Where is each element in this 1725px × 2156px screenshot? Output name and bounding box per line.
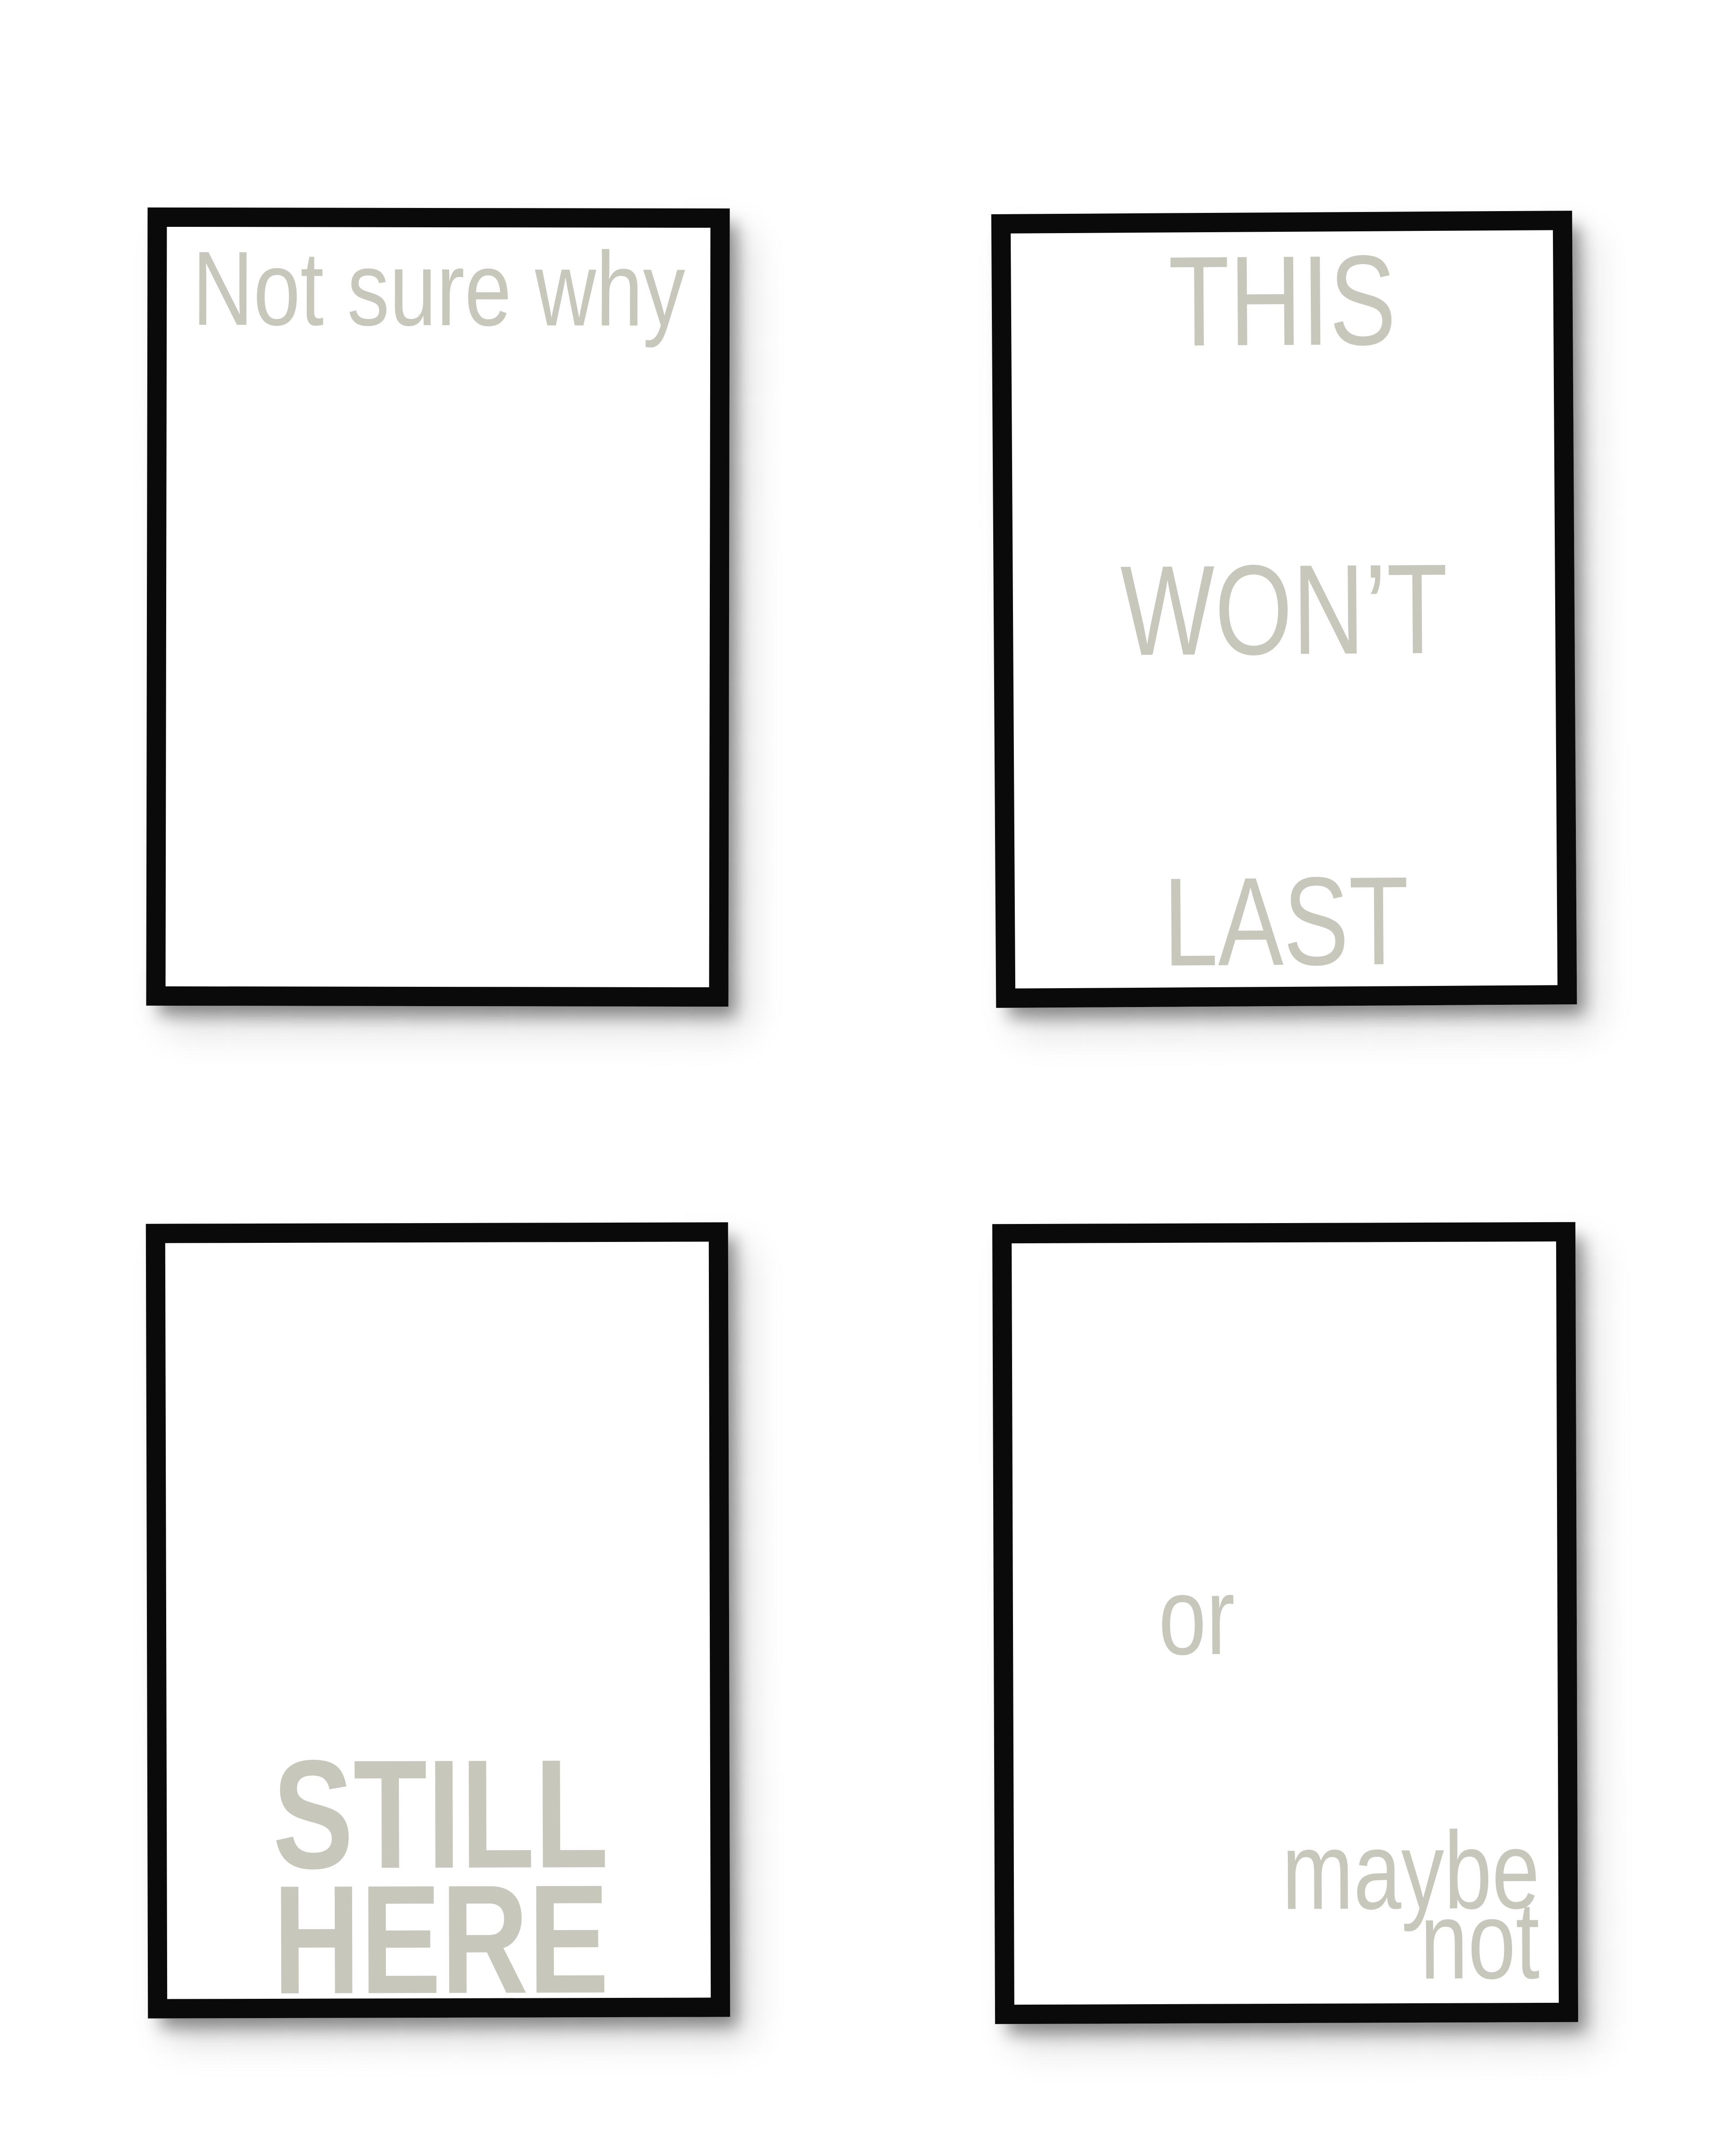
poster-frame-top-left: Not sure why: [146, 208, 730, 1007]
poster-frame-bottom-right: or maybe not: [992, 1222, 1578, 2024]
poster-sheet-top-right: THIS WON’T LAST: [1011, 230, 1557, 988]
poster-line-or: or: [1159, 1561, 1235, 1671]
poster-frame-bottom-left: STILL HERE: [146, 1222, 730, 2018]
wall-background: Not sure why THIS WON’T LAST STILL HERE …: [0, 0, 1725, 2156]
poster-line-not: not: [1420, 1885, 1540, 1996]
poster-line-last: LAST: [1074, 857, 1498, 986]
poster-line-not-sure-why: Not sure why: [192, 235, 685, 342]
poster-sheet-bottom-right: or maybe not: [1012, 1241, 1559, 2005]
poster-frame-top-right: THIS WON’T LAST: [991, 211, 1577, 1008]
poster-line-this: THIS: [1070, 236, 1494, 367]
poster-sheet-bottom-left: STILL HERE: [165, 1241, 711, 1999]
poster-line-here: HERE: [273, 1862, 609, 2018]
poster-line-wont: WON’T: [1072, 545, 1496, 676]
poster-sheet-top-left: Not sure why: [166, 227, 711, 987]
